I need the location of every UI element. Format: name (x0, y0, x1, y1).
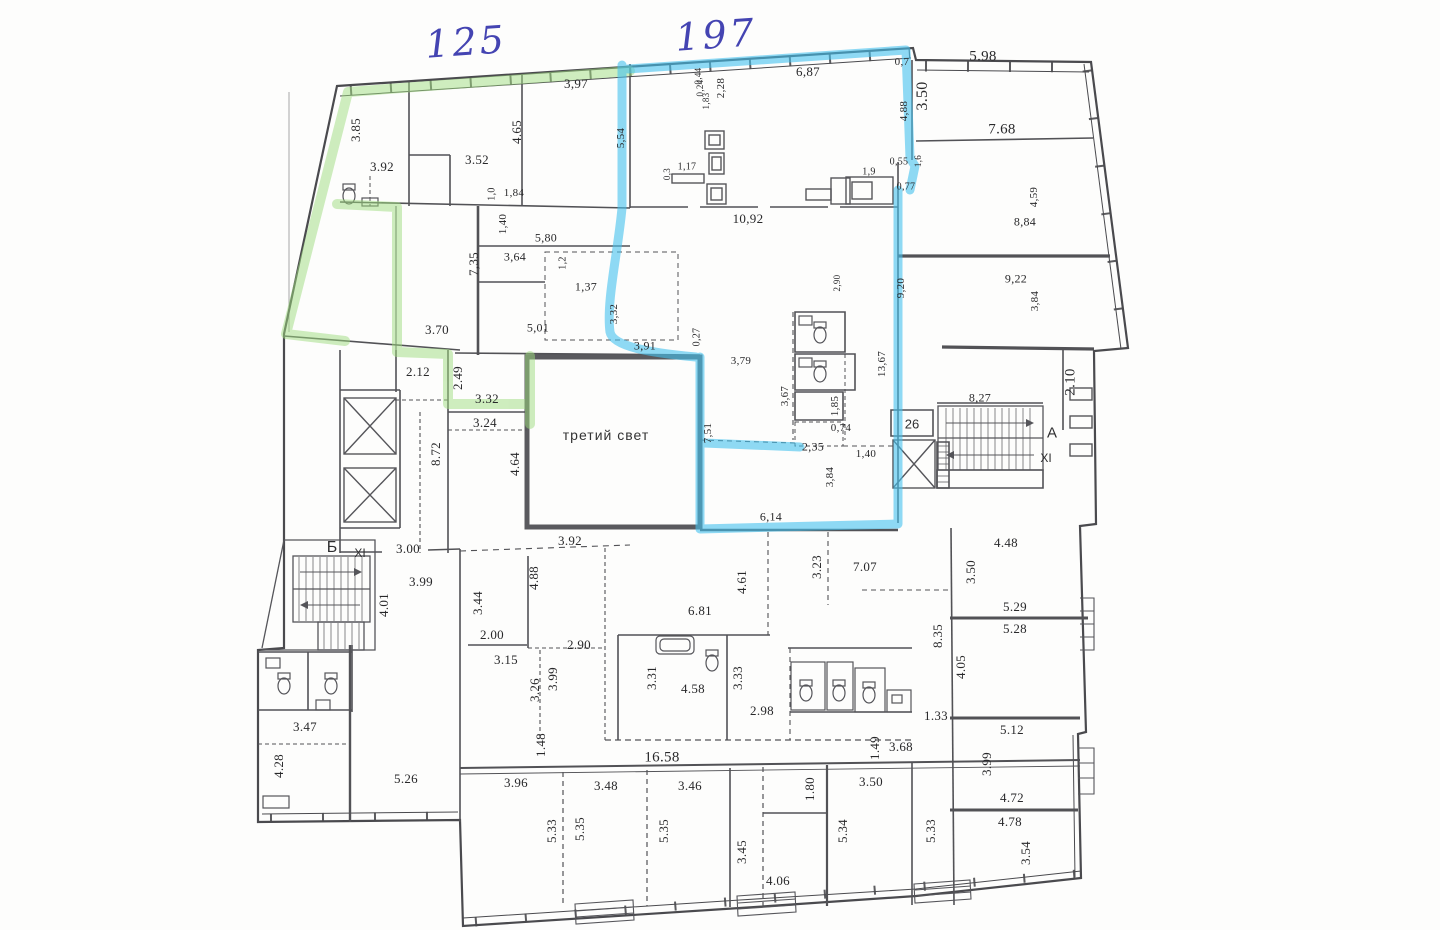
blue-highlight-path (609, 50, 915, 529)
shaft-boxes (672, 131, 1092, 456)
floorplan-drawing (0, 0, 1440, 930)
staircase-B-icon (262, 540, 375, 650)
elevator-icon (344, 398, 949, 522)
green-highlight-path (286, 71, 630, 424)
scanned-floorplan-page: 3,976,870,75.983.504,887.680,440,241,832… (0, 0, 1440, 930)
bathroom-fixtures (263, 184, 911, 808)
outer-walls (258, 48, 1128, 926)
staircase-A-icon (938, 406, 1043, 470)
interior-walls (258, 60, 1110, 907)
